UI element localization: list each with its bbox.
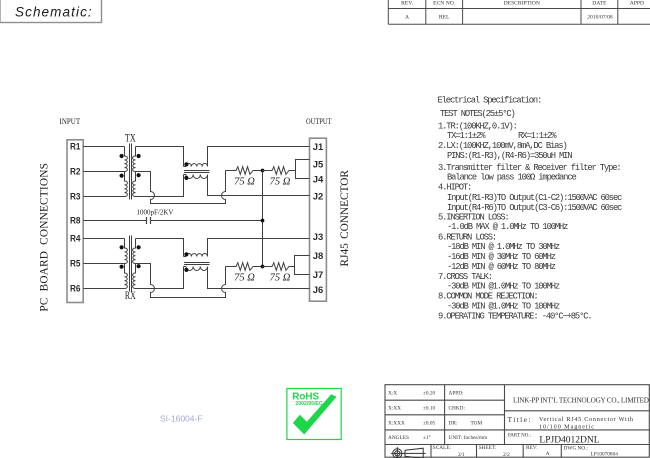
svg-text:75 Ω: 75 Ω xyxy=(234,272,255,283)
svg-text:X:X: X:X xyxy=(388,390,397,396)
svg-text:TEST NOTES(25±5°C): TEST NOTES(25±5°C) xyxy=(440,109,515,119)
svg-text:Input(R1-R3)TO Output(C1-C2):1: Input(R1-R3)TO Output(C1-C2):1500VAC 60s… xyxy=(447,193,622,203)
svg-text:A: A xyxy=(405,14,409,20)
svg-text:SCALE:: SCALE: xyxy=(433,445,452,451)
svg-text:75 Ω: 75 Ω xyxy=(234,176,255,187)
svg-text:±1°: ±1° xyxy=(423,434,431,441)
svg-text:9.OPERATING TEMPERATURE: -40°C: 9.OPERATING TEMPERATURE: -40°C~+85°C. xyxy=(438,311,592,321)
svg-text:-18dB MIN @ 1.0MHz TO 30MHz: -18dB MIN @ 1.0MHz TO 30MHz xyxy=(447,242,560,252)
svg-text:R1: R1 xyxy=(70,142,81,152)
svg-text:ANGLES: ANGLES xyxy=(388,435,409,441)
svg-text:Vertical RJ45 Connector With: Vertical RJ45 Connector With xyxy=(539,416,634,423)
svg-text:75 Ω: 75 Ω xyxy=(270,176,291,187)
svg-text:R8: R8 xyxy=(70,216,81,226)
svg-text:-12dB MIN @ 60MHz TO 80MHz: -12dB MIN @ 60MHz TO 80MHz xyxy=(447,262,556,272)
svg-text:SHEET:: SHEET: xyxy=(479,445,497,451)
svg-text:RJ45 CONNECTOR: RJ45 CONNECTOR xyxy=(339,170,351,267)
svg-text:J2: J2 xyxy=(313,192,324,202)
svg-text:REL: REL xyxy=(439,14,450,20)
svg-text:OUTPUT: OUTPUT xyxy=(306,116,332,126)
svg-text:PC BOARD CONNECTIONS: PC BOARD CONNECTIONS xyxy=(38,163,50,312)
svg-text:Electrical Specification:: Electrical Specification: xyxy=(438,95,542,105)
svg-text:-1.0dB MAX @ 1.0MHz TO 100MHz: -1.0dB MAX @ 1.0MHz TO 100MHz xyxy=(447,222,568,232)
svg-text:2/1: 2/1 xyxy=(458,452,465,458)
svg-text:SI-16004-F: SI-16004-F xyxy=(160,414,203,424)
svg-text:LP10070804: LP10070804 xyxy=(591,452,619,458)
svg-text:TX=1:1±2%: TX=1:1±2% xyxy=(447,131,486,141)
svg-text:ECN NO.: ECN NO. xyxy=(433,1,456,7)
svg-text:X:XX: X:XX xyxy=(388,406,401,412)
svg-text:2002/95/EC: 2002/95/EC xyxy=(295,401,323,407)
svg-text:R6: R6 xyxy=(70,284,81,294)
svg-text:DESCRIPTION: DESCRIPTION xyxy=(504,1,540,7)
svg-text:±0.05: ±0.05 xyxy=(423,420,436,426)
svg-text:5.INSERTION LOSS:: 5.INSERTION LOSS: xyxy=(438,213,509,223)
svg-text:-30dB MIN @1.0MHz TO 100MHz: -30dB MIN @1.0MHz TO 100MHz xyxy=(447,281,560,291)
svg-text:J4: J4 xyxy=(313,175,324,185)
svg-text:10/100 Magnetic: 10/100 Magnetic xyxy=(539,424,594,431)
svg-text:LINK-PP INT’L TECHNOLOGY CO.,: LINK-PP INT’L TECHNOLOGY CO., LIMITED xyxy=(513,397,649,405)
svg-text:R3: R3 xyxy=(70,192,81,202)
svg-text:X:XXX: X:XXX xyxy=(388,420,405,426)
svg-text:DR:: DR: xyxy=(449,420,458,426)
svg-text:2010/07/08: 2010/07/08 xyxy=(587,14,613,20)
svg-text:DATE: DATE xyxy=(592,1,607,7)
svg-text:TOM: TOM xyxy=(471,420,483,426)
svg-text:J8: J8 xyxy=(313,251,324,261)
svg-text:J1: J1 xyxy=(313,142,324,152)
svg-text:REV:: REV: xyxy=(526,445,538,451)
svg-text:CHKD:: CHKD: xyxy=(449,406,466,412)
svg-text:DWG NO.:: DWG NO.: xyxy=(564,446,589,452)
svg-text:PINS:(R1-R3),(R4-R6)=350uH MIN: PINS:(R1-R3),(R4-R6)=350uH MIN xyxy=(447,151,572,161)
svg-text:R2: R2 xyxy=(70,167,81,177)
svg-text:INPUT: INPUT xyxy=(60,116,81,126)
svg-text:R5: R5 xyxy=(70,259,81,269)
svg-text:J6: J6 xyxy=(313,285,324,295)
svg-text:4.HIPOT:: 4.HIPOT: xyxy=(438,182,471,192)
svg-text:RX: RX xyxy=(125,290,136,302)
svg-text:REV.: REV. xyxy=(401,1,413,7)
svg-text:75 Ω: 75 Ω xyxy=(270,272,291,283)
svg-text:APPD:: APPD: xyxy=(449,390,465,396)
svg-text:Balance low pass 100Ω impedanc: Balance low pass 100Ω impedance xyxy=(447,172,576,182)
svg-text:Schematic:: Schematic: xyxy=(15,5,93,20)
svg-text:PART NO.:: PART NO.: xyxy=(508,434,531,439)
svg-text:2.LX:(100KHZ,100mV,8mA,DC Bias: 2.LX:(100KHZ,100mV,8mA,DC Bias) xyxy=(438,141,567,151)
svg-text:2/2: 2/2 xyxy=(503,452,510,458)
svg-text:1.TR:(100KHZ,0.1V):: 1.TR:(100KHZ,0.1V): xyxy=(438,122,517,132)
svg-text:±0.10: ±0.10 xyxy=(423,406,436,412)
svg-text:APPD: APPD xyxy=(630,1,644,7)
svg-text:8.COMMON MODE REJECTION:: 8.COMMON MODE REJECTION: xyxy=(438,291,538,301)
svg-text:J3: J3 xyxy=(313,232,324,242)
svg-text:LPJD4012DNL: LPJD4012DNL xyxy=(539,435,599,445)
svg-text:-30dB MIN @1.0MHz TO 100MHz: -30dB MIN @1.0MHz TO 100MHz xyxy=(447,301,560,311)
svg-text:J7: J7 xyxy=(313,270,324,280)
svg-text:R4: R4 xyxy=(70,234,81,244)
svg-text:±0.20: ±0.20 xyxy=(423,390,436,396)
svg-text:TX: TX xyxy=(125,133,136,145)
svg-text:Title:: Title: xyxy=(508,415,532,424)
svg-text:J5: J5 xyxy=(313,160,324,170)
svg-text:-16dB MIN @ 30MHz TO 60MHz: -16dB MIN @ 30MHz TO 60MHz xyxy=(447,252,556,262)
svg-text:RX=1:1±2%: RX=1:1±2% xyxy=(518,131,557,141)
svg-text:A: A xyxy=(546,451,550,457)
svg-text:Input(R4-R6)TO Output(C3-C6):1: Input(R4-R6)TO Output(C3-C6):1500VAC 60s… xyxy=(447,203,622,213)
svg-text:UNIT: Inches/mm: UNIT: Inches/mm xyxy=(449,435,489,441)
svg-text:1000pF/2KV: 1000pF/2KV xyxy=(137,208,174,216)
